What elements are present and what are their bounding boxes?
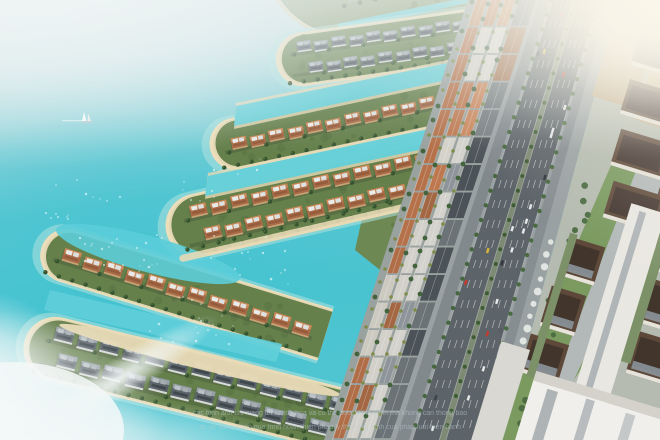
svg-text:cac hinh anh chi mang tinh min: cac hinh anh chi mang tinh minh hoa va c…: [193, 410, 467, 417]
svg-text:du an dang trong qua trinh hoa: du an dang trong qua trinh hoan thien ph…: [199, 424, 461, 431]
